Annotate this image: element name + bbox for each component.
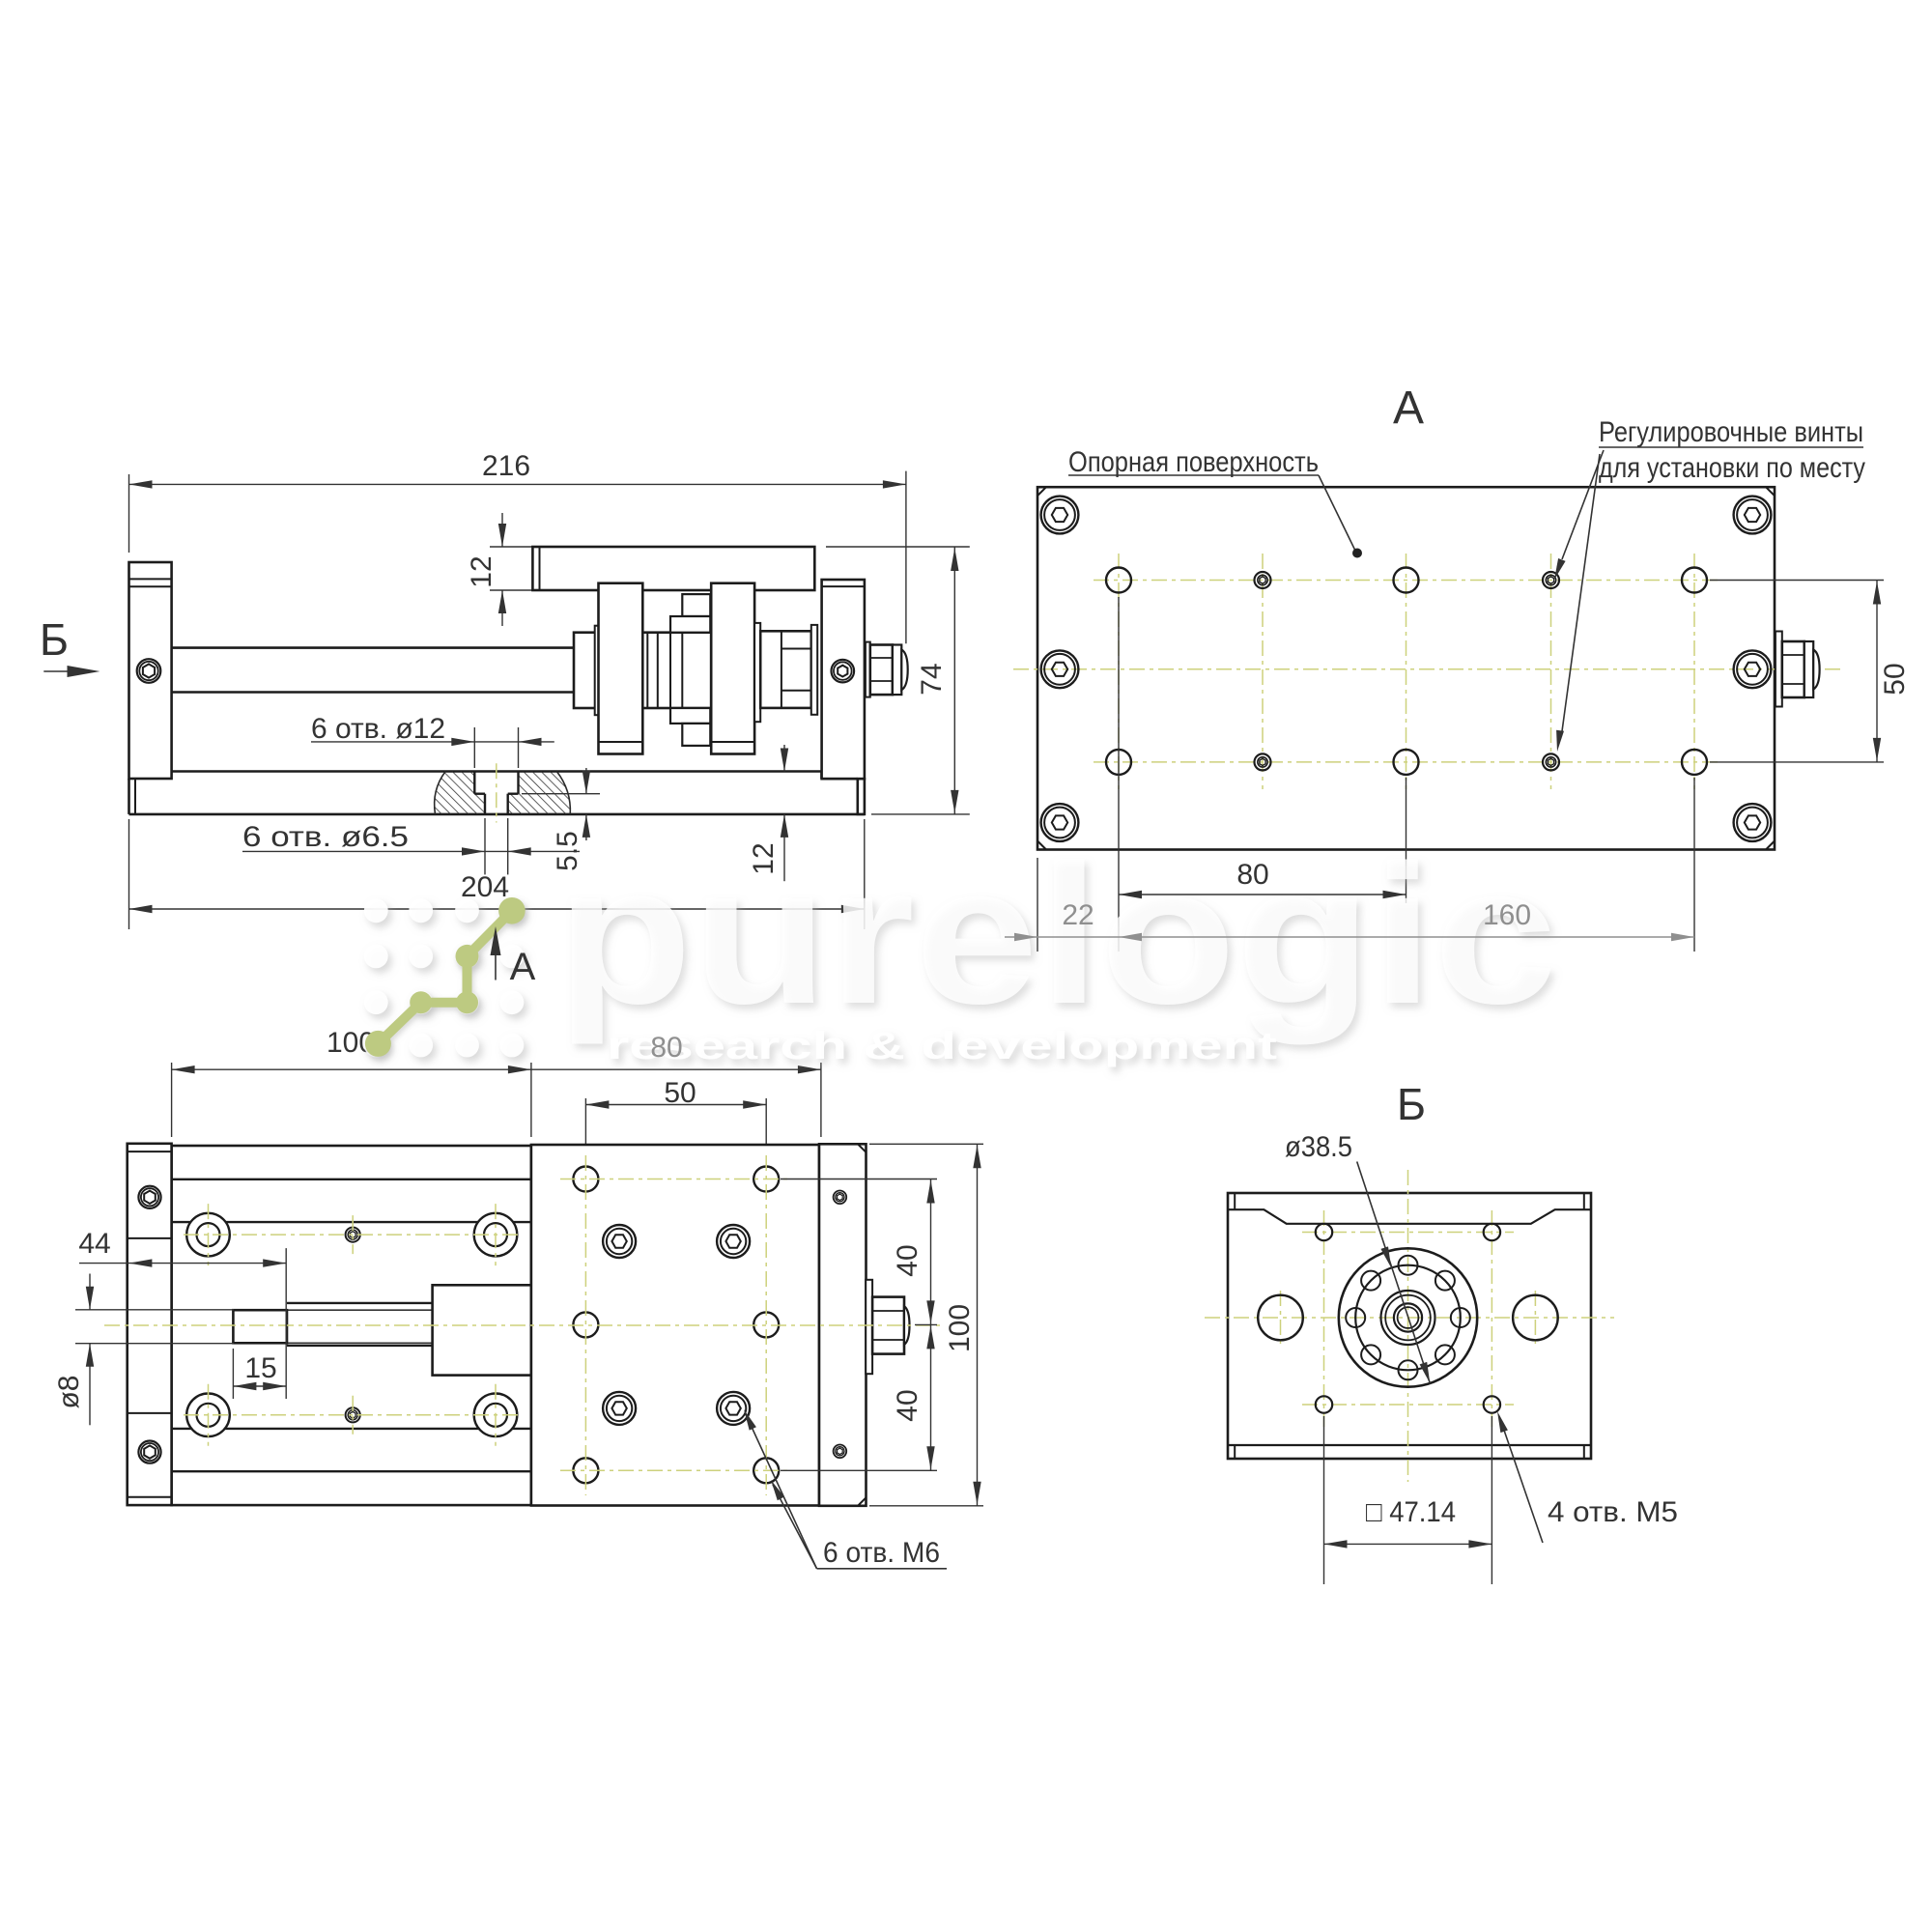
svg-text:22: 22 xyxy=(1062,899,1094,931)
svg-text:44: 44 xyxy=(78,1228,110,1260)
svg-text:Б: Б xyxy=(40,614,69,665)
svg-text:для установки по месту: для установки по месту xyxy=(1599,452,1865,484)
svg-text:А: А xyxy=(1393,383,1424,434)
svg-text:6 отв. ø12: 6 отв. ø12 xyxy=(311,713,445,745)
svg-text:40: 40 xyxy=(892,1389,923,1421)
svg-text:purelogic: purelogic xyxy=(556,824,1557,1045)
svg-text:Б: Б xyxy=(1397,1079,1426,1129)
svg-text:40: 40 xyxy=(892,1244,923,1276)
svg-text:50: 50 xyxy=(1879,663,1911,695)
svg-text:80: 80 xyxy=(650,1032,682,1064)
svg-text:ø38.5: ø38.5 xyxy=(1285,1131,1352,1163)
svg-text:4 отв. М5: 4 отв. М5 xyxy=(1548,1496,1678,1528)
svg-text:6 отв. М6: 6 отв. М6 xyxy=(823,1537,940,1569)
svg-text:Опорная поверхность: Опорная поверхность xyxy=(1068,446,1319,478)
svg-text:Регулировочные винты: Регулировочные винты xyxy=(1599,416,1863,448)
svg-text:research & development: research & development xyxy=(607,1025,1277,1067)
svg-text:204: 204 xyxy=(461,871,509,903)
svg-text:6 отв. ø6.5: 6 отв. ø6.5 xyxy=(242,821,409,853)
svg-text:А: А xyxy=(510,946,536,988)
svg-text:ø8: ø8 xyxy=(53,1375,85,1408)
svg-text:160: 160 xyxy=(1483,899,1531,931)
svg-text:100: 100 xyxy=(944,1304,976,1352)
svg-text:50: 50 xyxy=(664,1077,696,1109)
svg-text:15: 15 xyxy=(244,1352,276,1384)
svg-text:74: 74 xyxy=(916,663,948,695)
svg-text:□ 47.14: □ 47.14 xyxy=(1366,1496,1456,1528)
svg-text:12: 12 xyxy=(466,555,497,587)
svg-text:216: 216 xyxy=(482,450,530,482)
